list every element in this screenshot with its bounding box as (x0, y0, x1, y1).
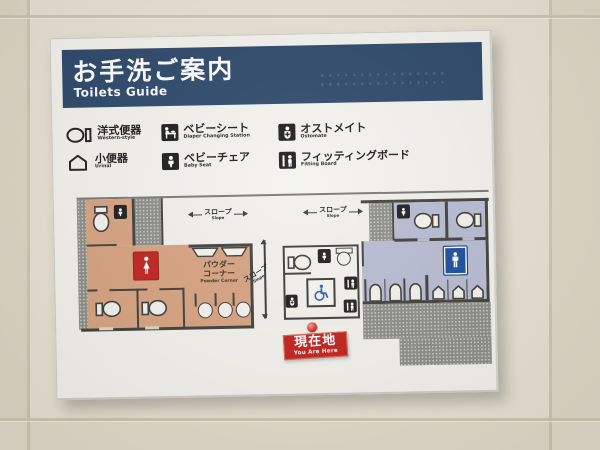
wall (425, 275, 428, 300)
mirror-icon (192, 247, 219, 258)
legend-label: オストメイト Ostomate (300, 122, 366, 140)
legend-item-fitting-board: フィッティングボード Fitting Board (279, 149, 410, 169)
legend-label-en: Urinal (95, 165, 128, 170)
toilet-icon (91, 205, 112, 233)
door-slot (99, 327, 113, 330)
oval-urinal-icon (387, 282, 403, 302)
urinal-partition (364, 279, 366, 301)
sign-board: お手洗ご案内 Toilets Guide 洋式便器 Western-style … (50, 30, 499, 400)
legend-label: ベビーチェア Baby Seat (184, 151, 250, 169)
legend-label-en: Western-style (97, 137, 141, 143)
legend-item-western-style: 洋式便器 Western-style (65, 125, 141, 144)
arrow-left-icon (189, 214, 202, 216)
door-opening (462, 237, 474, 240)
mirror-icon (221, 247, 248, 258)
urinal-partition (447, 280, 449, 300)
basin-partition (232, 293, 234, 306)
wall-tile-left (0, 0, 28, 450)
legend-label-jp: 洋式便器 (97, 125, 141, 137)
slope-label-right: スロープ Slope (304, 206, 362, 218)
legend-item-diaper-changing: ベビーシート Diaper Changing Station (161, 122, 250, 141)
men-toilet-sign (443, 245, 469, 275)
tile-groove-vertical-left (27, 0, 30, 450)
arrow-left-icon (304, 212, 317, 214)
baby-seat-icon (162, 153, 179, 170)
fitting-board-icon (344, 276, 357, 289)
you-are-here-dot (307, 322, 317, 332)
urinal-icon (469, 283, 485, 299)
powder-corner-jp2: コーナー (190, 269, 248, 279)
sign-header: お手洗ご案内 Toilets Guide (62, 42, 483, 108)
ostomate-icon (286, 295, 298, 308)
legend-label: フィッティングボード Fitting Board (301, 149, 410, 168)
legend-label-jp: 小便器 (95, 153, 128, 165)
toilet-icon (455, 210, 482, 230)
slope-en: Slope (204, 216, 232, 221)
legend-item-ostomate: オストメイト Ostomate (278, 122, 366, 141)
women-toilet-sign (133, 251, 160, 280)
tile-groove-vertical-right (549, 0, 552, 450)
urinal-icon (430, 284, 446, 300)
oval-urinal-icon (407, 281, 423, 301)
western-toilet-icon (65, 125, 92, 144)
legend-label-jp: ベビーチェア (184, 151, 250, 163)
wheelchair-icon (311, 283, 330, 302)
arrow-right-icon (234, 213, 247, 215)
basin-partition (194, 294, 196, 307)
toilet-icon (287, 253, 312, 271)
hatch-service-block (369, 202, 393, 241)
wheelchair-sign (306, 278, 336, 308)
legend-label-en: Baby Seat (184, 163, 250, 169)
door-slot (145, 326, 159, 329)
you-are-here-sign: 現在地 You Are Here (283, 331, 348, 360)
hatch-bottom-area (363, 302, 492, 339)
urinal-icon (66, 154, 90, 172)
tile-groove-horizontal-top (0, 15, 600, 18)
wall (87, 289, 97, 291)
hatch-service-block (135, 198, 162, 245)
baby-seat-icon (397, 204, 410, 218)
legend-item-urinal: 小便器 Urinal (66, 153, 128, 172)
oval-urinal-icon (367, 282, 383, 302)
basin-partition (214, 293, 216, 306)
wall-tile-bottom (0, 420, 600, 450)
baby-seat-icon (114, 205, 127, 219)
page-subtitle: Toilets Guide (73, 84, 167, 100)
ostomate-icon (278, 124, 295, 141)
legend-label: 洋式便器 Western-style (97, 125, 141, 143)
door-opening (308, 312, 332, 315)
legend-label: 小便器 Urinal (95, 153, 128, 170)
legend-label-en: Ostomate (300, 134, 366, 140)
woman-icon (138, 255, 153, 276)
tile-groove-horizontal-bottom (0, 418, 600, 421)
toilet-icon (413, 211, 440, 231)
man-icon (449, 250, 462, 270)
urinal-icon (450, 283, 466, 299)
slope-en: Slope (319, 214, 347, 219)
toilet-icon (95, 299, 122, 319)
legend-label-jp: フィッティングボード (301, 149, 410, 162)
diaper-changing-icon (161, 124, 178, 141)
arrow-right-icon (349, 211, 362, 213)
fitting-board-icon (279, 152, 296, 169)
braille-dots (318, 69, 448, 91)
legend-label-jp: オストメイト (300, 122, 366, 134)
floor-map: パウダー コーナー Powder Corner ス (77, 190, 494, 372)
toilet-icon (141, 298, 168, 318)
fitting-board-icon (344, 299, 357, 312)
hatch-bottom-area (399, 337, 492, 366)
door-opening (417, 238, 429, 241)
legend-label: ベビーシート Diaper Changing Station (183, 122, 250, 140)
urinal-partition (384, 279, 386, 301)
baby-seat-icon (318, 249, 331, 263)
wall-tile-right (551, 0, 600, 450)
page-title: お手洗ご案内 (72, 50, 235, 89)
legend-label-en: Diaper Changing Station (183, 134, 249, 140)
legend-item-baby-seat: ベビーチェア Baby Seat (162, 151, 250, 170)
slope-label-left: スロープ Slope (189, 209, 247, 221)
